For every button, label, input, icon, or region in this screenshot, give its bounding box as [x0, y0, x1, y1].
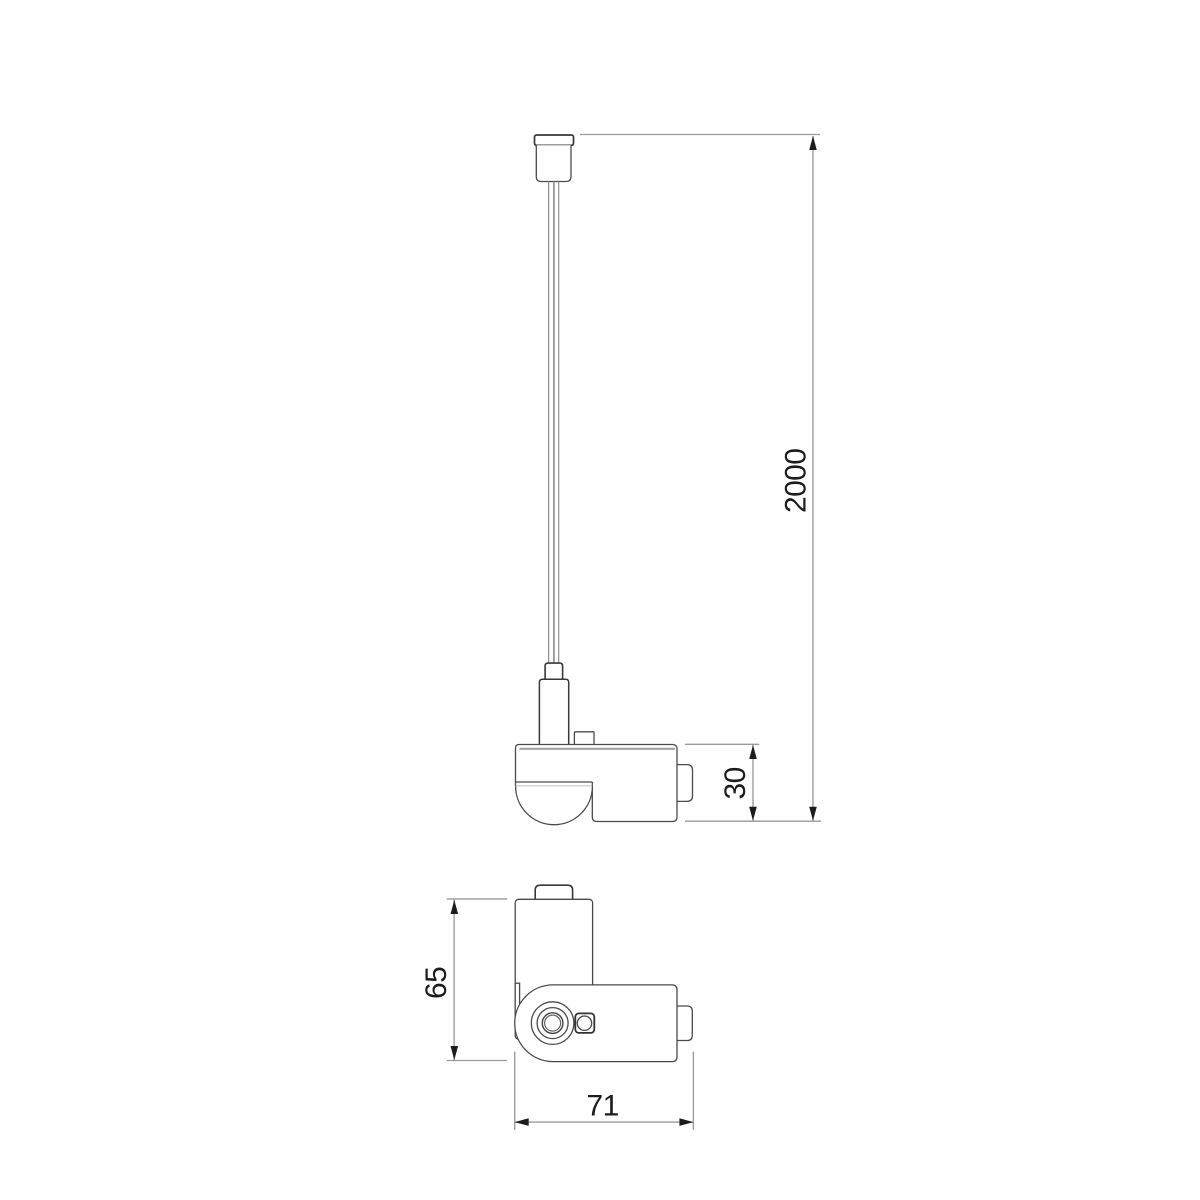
svg-text:71: 71 [587, 1090, 619, 1123]
svg-text:65: 65 [420, 967, 453, 999]
svg-text:2000: 2000 [780, 449, 813, 513]
svg-text:30: 30 [719, 767, 752, 799]
